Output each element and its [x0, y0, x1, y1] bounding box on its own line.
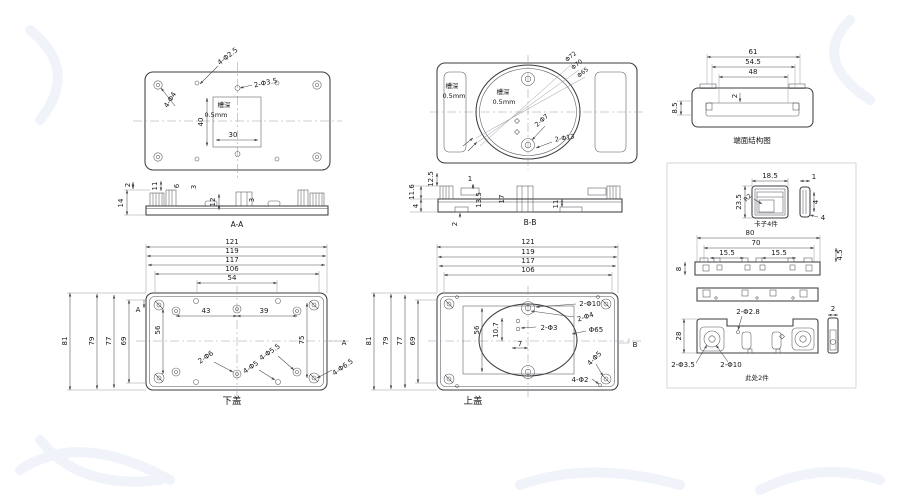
- aa-dim-11: 11: [151, 182, 159, 191]
- bc-dim-39: 39: [260, 307, 269, 315]
- holes-7-callout: 2-Φ7: [533, 112, 550, 128]
- aa-dim-2: 2: [124, 183, 132, 187]
- detail-group: R2 18.5 23.5 1 4 4 卡子4件 80 70: [667, 163, 856, 388]
- center-groove-label: 槽深: [497, 87, 511, 96]
- bb-dim-11: 11: [552, 200, 560, 209]
- aa-bosses: [150, 190, 324, 206]
- clip-side-depth-dim: 4: [812, 199, 820, 204]
- tc-callout-d65: Φ65: [589, 326, 603, 334]
- bb-dim-2: 2: [451, 222, 459, 226]
- top-cover-view: 121 119 117 106 81 79 77 69 56 10.7 7 2-…: [365, 238, 642, 407]
- aa-dim-14: 14: [117, 198, 125, 207]
- clip-side-bottom-dim: 4: [821, 214, 826, 222]
- bb-dim-17: 17: [498, 195, 506, 204]
- bc-dim-119: 119: [225, 247, 238, 255]
- tc-callout-2d3: 2-Φ3: [541, 324, 558, 332]
- rail-dim-70: 70: [752, 239, 761, 247]
- holes-small-callout: 4-Φ2.5: [216, 46, 240, 67]
- section-aa-caption: A-A: [231, 220, 245, 229]
- bc-callout-4d5: 4-Φ5: [242, 359, 260, 375]
- bc-dim-69: 69: [120, 337, 128, 346]
- foot-callout-2d35: 2-Φ3.5: [671, 361, 695, 369]
- top-cover-caption: 上盖: [463, 395, 483, 407]
- groove-label: 槽深: [218, 100, 232, 109]
- foot-detail: 28 2-Φ2.8 2 2-Φ3.5 2-Φ10 此处2件: [671, 305, 838, 382]
- rail-dim-45: 4.5: [836, 249, 844, 260]
- tc-dim-107: 10.7: [492, 322, 500, 338]
- end-face-width-outer: 61: [749, 48, 758, 56]
- aa-dim-3a: 3: [190, 185, 198, 189]
- bc-dim-81: 81: [61, 337, 69, 346]
- left-groove-depth: 0.5mm: [442, 92, 465, 100]
- bb-dim-135: 13.5: [475, 192, 483, 208]
- clip-detail: R2 18.5 23.5 1 4 4 卡子4件: [735, 172, 826, 228]
- bc-dim-121: 121: [225, 238, 238, 246]
- tc-dim-106: 106: [521, 266, 535, 274]
- tc-dim-81: 81: [365, 337, 373, 346]
- holes-13-callout: 2-Φ13: [554, 132, 575, 143]
- clip-caption: 卡子4件: [754, 219, 778, 228]
- center-groove-depth: 0.5mm: [492, 98, 515, 106]
- section-bb-caption: B-B: [524, 218, 537, 227]
- foot-dim-2: 2: [831, 305, 835, 313]
- bc-dim-43: 43: [202, 307, 211, 315]
- left-groove-label: 槽深: [446, 81, 460, 90]
- tc-callout-2d4: 2-Φ4: [576, 311, 595, 324]
- tc-dim-117: 117: [521, 257, 534, 265]
- bc-dim-54: 54: [228, 274, 237, 282]
- tc-callout-4d5: 4-Φ5: [586, 350, 604, 368]
- clip-side-width-dim: 1: [812, 173, 816, 181]
- bc-section-marker-left: A: [136, 306, 141, 314]
- foot-callout-2d10: 2-Φ10: [720, 361, 741, 369]
- engineering-drawing-sheet: 槽深 0.5mm 30 40 4-Φ2.5 4-Φ4 2-Φ3.5: [0, 0, 900, 500]
- rail-dim-80: 80: [746, 229, 755, 237]
- top-cover-holes: [444, 296, 611, 388]
- bc-dim-79: 79: [88, 337, 96, 346]
- top-left-plate-view: 槽深 0.5mm 30 40 4-Φ2.5 4-Φ4 2-Φ3.5: [133, 46, 342, 180]
- clip-width-dim: 18.5: [762, 172, 778, 180]
- bottom-cover-holes: [154, 299, 319, 385]
- end-face-caption: 端面结构图: [733, 135, 771, 145]
- tc-dim-56: 56: [473, 325, 481, 334]
- bottom-cover-view: 121 119 117 106 54 43 39 81 79 77 69 56 …: [61, 238, 355, 407]
- clip-height-dim: 23.5: [735, 194, 743, 210]
- tc-dim-121: 121: [521, 238, 534, 246]
- section-bb-view: 12.5 11.6 4 1 13.5 17 11 2 B-B: [408, 171, 622, 227]
- tc-dim-7: 7: [518, 340, 522, 348]
- tc-callout-2d10: 2-Φ10: [579, 300, 600, 308]
- top-center-plate-view: Φ72 Φ70 Φ65 槽深 0.5mm 槽深 0.5mm 2-Φ7 2-Φ13: [430, 50, 645, 170]
- groove-width-dim: 30: [229, 131, 238, 139]
- foot-dim-28: 28: [675, 332, 683, 341]
- bb-dim-116: 11.6: [408, 184, 416, 200]
- bc-callout-4d65: 4-Φ6.5: [331, 357, 355, 377]
- foot-caption: 此处2件: [745, 373, 769, 382]
- rail-detail: 80 70 15.5 15.5 8 4.5: [675, 229, 844, 301]
- aa-dim-6: 6: [173, 183, 181, 188]
- end-face-view: 61 54.5 48 2 8.5 端面结构图: [671, 48, 813, 145]
- end-face-step-dim: 2: [731, 94, 739, 98]
- bb-dim-1: 1: [468, 175, 472, 183]
- aa-dim-3b: 3: [248, 198, 256, 202]
- section-aa-view: 2 14 11 6 3 12 3 A-A: [117, 181, 328, 229]
- tc-dim-77: 77: [396, 337, 404, 346]
- bb-dim-4: 4: [412, 203, 420, 208]
- bc-callout-2d6: 2-Φ6: [197, 349, 216, 366]
- tc-dim-119: 119: [521, 248, 534, 256]
- bc-dim-56: 56: [154, 325, 162, 334]
- aa-dim-12: 12: [209, 198, 217, 207]
- end-face-width-mid: 54.5: [745, 58, 761, 66]
- bc-section-marker-right: A: [342, 339, 347, 347]
- bb-dim-125: 12.5: [427, 171, 435, 187]
- tc-dim-69: 69: [409, 337, 417, 346]
- groove-height-dim: 40: [197, 118, 205, 127]
- tc-callout-4d2: 4-Φ2: [572, 376, 589, 384]
- bc-dim-75: 75: [298, 336, 306, 345]
- foot-callout-2d28: 2-Φ2.8: [736, 308, 760, 316]
- end-face-height-dim: 8.5: [671, 102, 679, 113]
- bc-dim-117: 117: [225, 256, 238, 264]
- watermark: [20, 20, 880, 490]
- holes-center-callout: 2-Φ3.5: [253, 77, 278, 90]
- groove-depth-label: 0.5mm: [204, 111, 227, 119]
- bc-dim-106: 106: [225, 265, 239, 273]
- tc-section-marker-right: B: [633, 341, 638, 349]
- rail-dim-155b: 15.5: [771, 249, 787, 257]
- bottom-cover-caption: 下盖: [222, 395, 242, 407]
- bc-callout-4d55: 4-Φ5.5: [258, 342, 282, 362]
- drawing-svg: 槽深 0.5mm 30 40 4-Φ2.5 4-Φ4 2-Φ3.5: [0, 0, 900, 500]
- end-face-width-inner: 48: [749, 68, 758, 76]
- rail-dim-155a: 15.5: [719, 249, 735, 257]
- rail-dim-8: 8: [675, 267, 683, 271]
- tc-dim-79: 79: [382, 337, 390, 346]
- bc-dim-77: 77: [105, 337, 113, 346]
